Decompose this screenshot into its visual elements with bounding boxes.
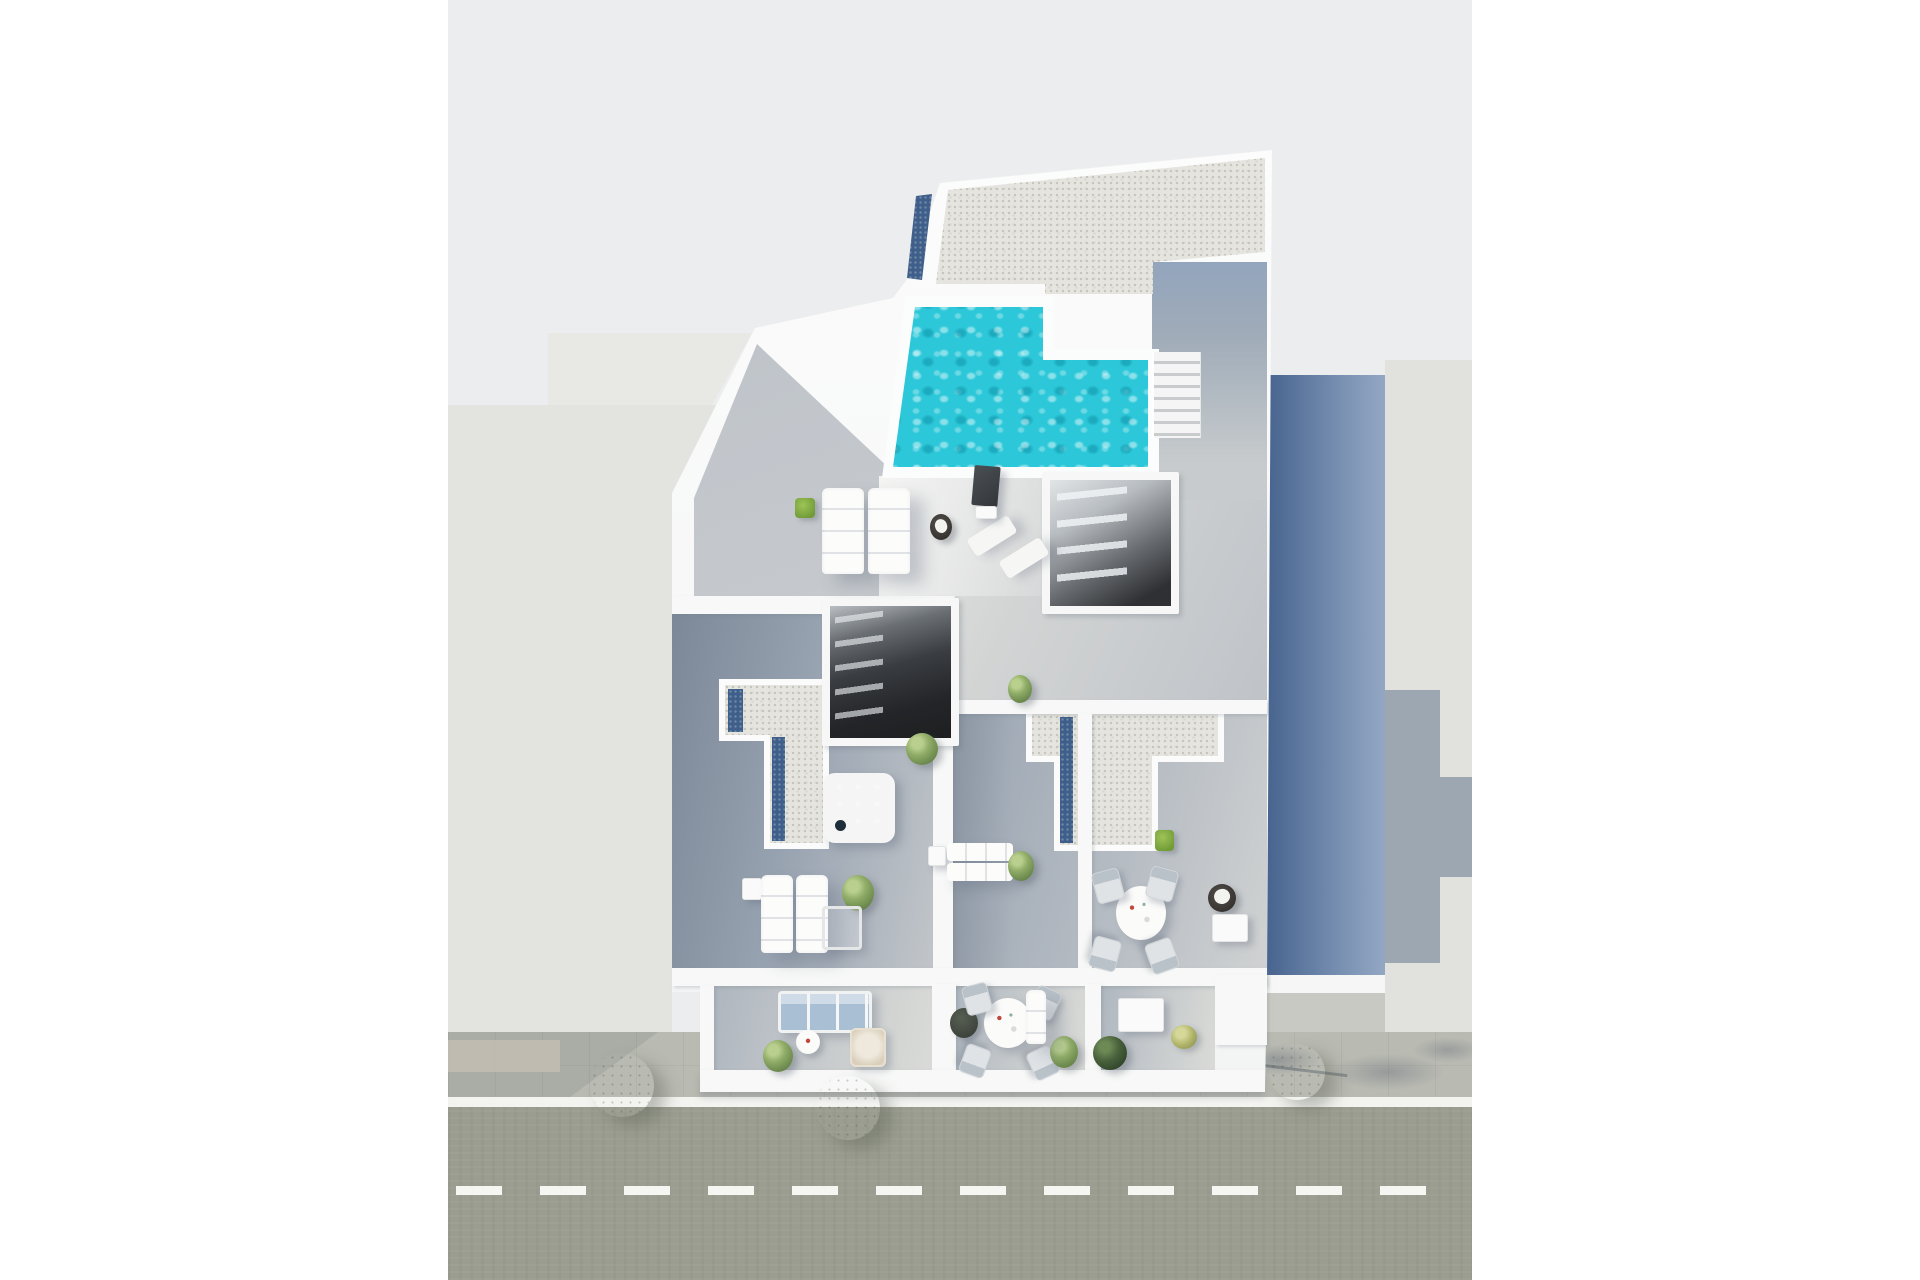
recliner <box>1026 990 1046 1044</box>
planter-green <box>795 498 815 518</box>
jacuzzi <box>823 773 895 843</box>
side-table <box>742 878 762 900</box>
side-table <box>928 846 946 866</box>
planter-cube <box>1155 830 1174 851</box>
potted-plant <box>1050 1036 1078 1068</box>
furniture-layer <box>448 0 1472 1280</box>
deck-chair <box>998 537 1049 579</box>
sun-lounger <box>947 843 1013 861</box>
sun-lounger <box>761 875 793 953</box>
street-tree <box>816 1076 880 1140</box>
sofa-blue <box>778 991 872 1033</box>
potted-plant <box>1171 1025 1197 1049</box>
render-canvas <box>448 0 1472 1280</box>
lounge-chair <box>822 906 862 950</box>
potted-plant <box>906 733 938 765</box>
side-desk <box>1212 914 1248 942</box>
wicker-chair <box>850 1028 886 1067</box>
balcony-table <box>1118 998 1164 1032</box>
dining-chair <box>1144 865 1179 903</box>
dining-chair <box>1143 936 1180 976</box>
sun-lounger <box>868 488 910 574</box>
side-table-towel <box>930 514 952 540</box>
deck-chair <box>966 515 1017 557</box>
potted-plant <box>763 1040 793 1072</box>
sun-lounger <box>822 488 864 574</box>
dining-chair <box>1087 935 1122 973</box>
street-tree <box>1269 1044 1325 1100</box>
potted-plant <box>1008 851 1034 881</box>
street-tree <box>590 1053 654 1117</box>
potted-plant <box>1008 675 1032 703</box>
sun-lounger <box>947 863 1013 881</box>
dining-chair <box>958 1042 993 1079</box>
info-panel <box>971 465 1000 507</box>
tray-table <box>796 1030 820 1054</box>
fire-bowl <box>1208 884 1236 912</box>
potted-plant <box>1093 1036 1127 1070</box>
panel-base <box>975 506 997 519</box>
